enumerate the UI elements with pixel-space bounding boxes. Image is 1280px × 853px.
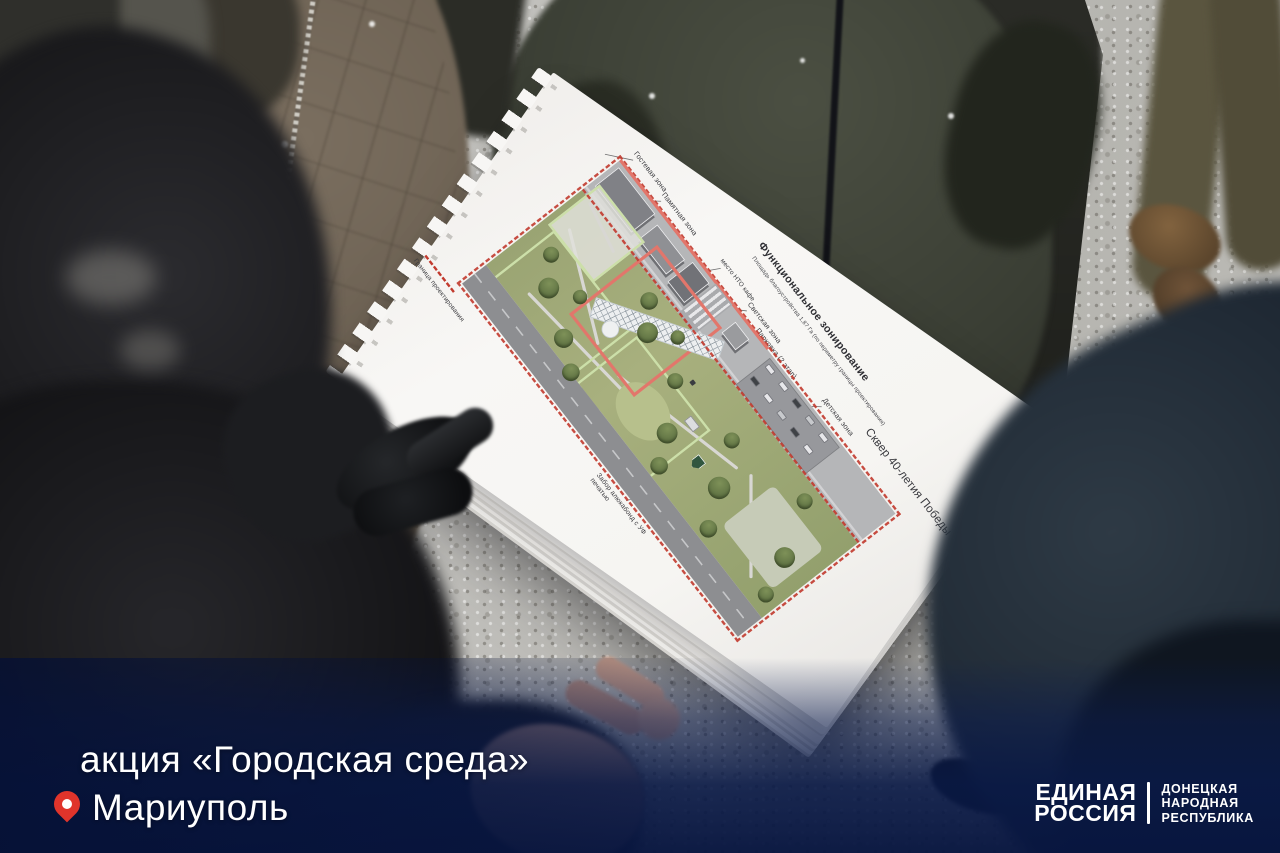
bokeh-light — [120, 330, 180, 370]
parked-car — [750, 375, 761, 387]
parked-car — [805, 415, 816, 427]
parked-car — [790, 426, 801, 438]
region-line3: РЕСПУБЛИКА — [1161, 811, 1254, 826]
party-name-line2: РОССИЯ — [1034, 803, 1136, 824]
parked-car — [778, 381, 789, 393]
caption-action: акция «Городская среда» — [80, 739, 529, 781]
parked-car — [803, 443, 814, 455]
parked-car — [763, 392, 774, 404]
snowflake — [800, 58, 805, 63]
snowflake — [948, 113, 954, 119]
er-logo: ЕДИНАЯ РОССИЯ ДОНЕЦКАЯ НАРОДНАЯ РЕСПУБЛИ… — [1034, 782, 1254, 826]
location-pin-icon — [49, 786, 86, 823]
snowflake — [369, 21, 375, 27]
parked-car — [791, 398, 802, 410]
logo-divider — [1147, 782, 1150, 824]
bokeh-light — [66, 250, 156, 305]
legend-label: Граница проектирования — [412, 257, 466, 323]
photo-scene: Функциональное зонирование Площадь благо… — [0, 0, 1280, 853]
parked-car — [765, 364, 776, 376]
region-line2: НАРОДНАЯ — [1161, 796, 1254, 811]
parked-car — [818, 432, 829, 444]
parked-car — [777, 409, 788, 421]
caption-city: Мариуполь — [92, 787, 289, 829]
caption-block: акция «Городская среда» Мариуполь — [52, 739, 529, 829]
region-name: ДОНЕЦКАЯ НАРОДНАЯ РЕСПУБЛИКА — [1161, 782, 1254, 826]
region-line1: ДОНЕЦКАЯ — [1161, 782, 1254, 797]
party-name: ЕДИНАЯ РОССИЯ — [1034, 782, 1136, 824]
